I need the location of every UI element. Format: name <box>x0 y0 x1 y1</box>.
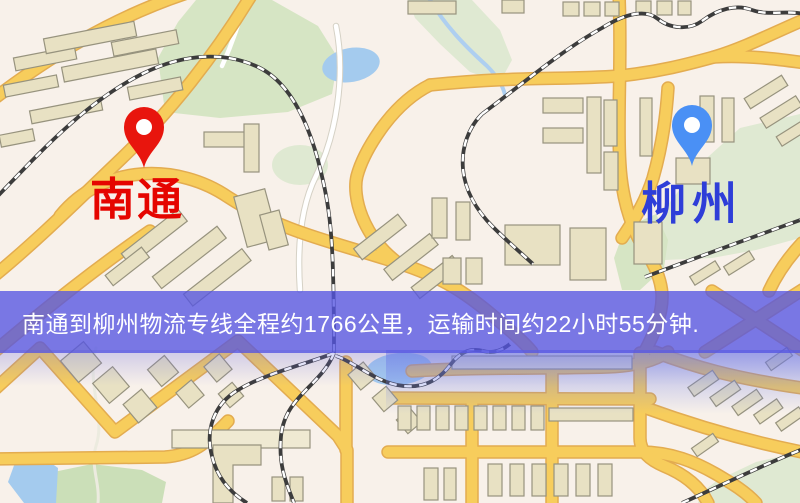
map-screenshot: 南通 柳州 南通到柳州物流专线全程约1766公里，运输时间约22小时55分钟. <box>0 0 800 503</box>
destination-city-label: 柳州 <box>641 181 743 226</box>
origin-city-label: 南通 <box>90 177 184 222</box>
route-info-text: 南通到柳州物流专线全程约1766公里，运输时间约22小时55分钟. <box>0 305 699 339</box>
destination-pin-icon <box>668 104 716 168</box>
origin-pin-icon <box>120 106 168 170</box>
route-info-banner: 南通到柳州物流专线全程约1766公里，运输时间约22小时55分钟. <box>0 291 800 353</box>
map-canvas <box>0 0 800 503</box>
